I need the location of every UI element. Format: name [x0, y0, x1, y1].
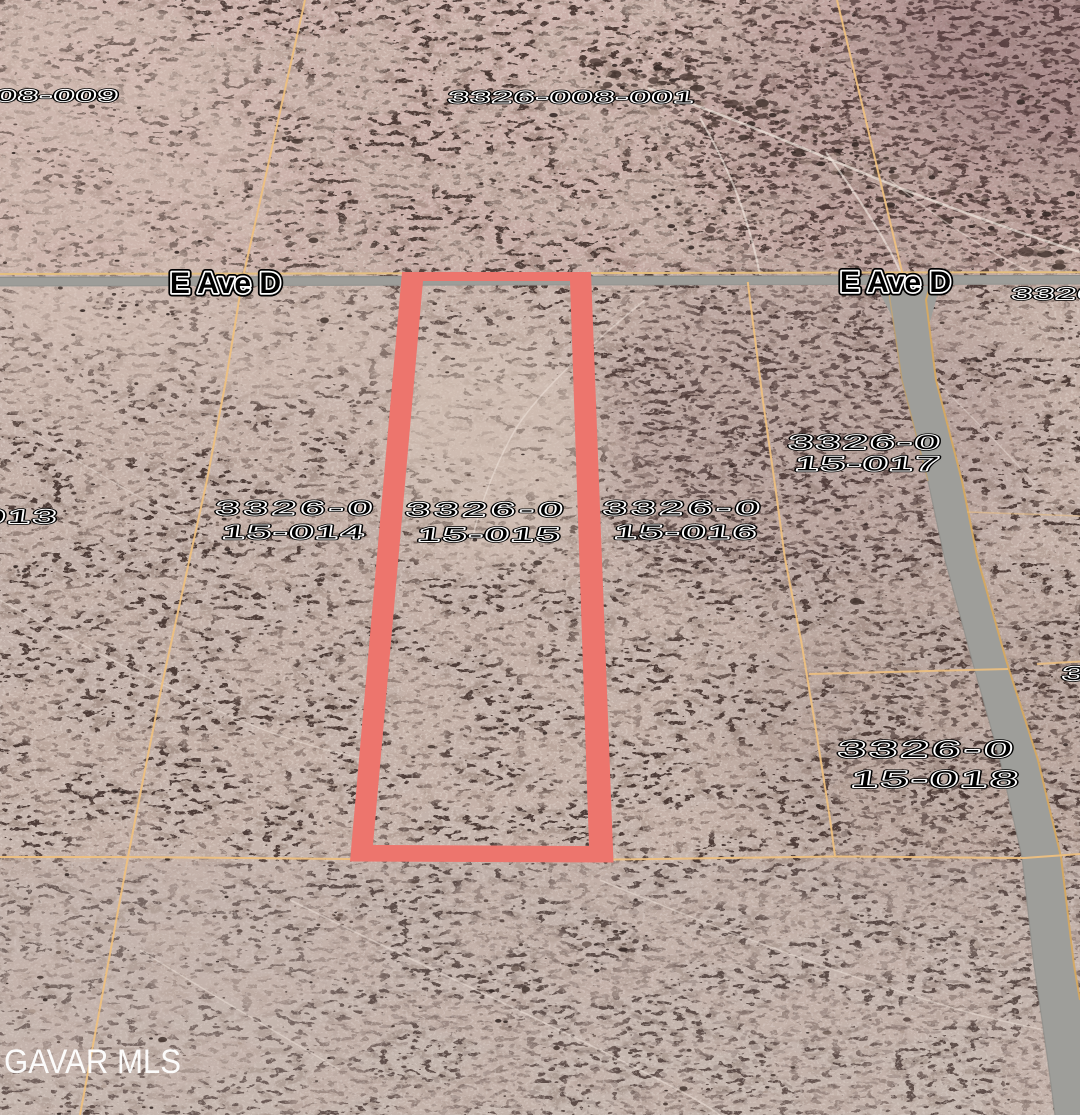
svg-text:3326-0: 3326-0: [215, 498, 379, 519]
svg-text:GAVAR MLS: GAVAR MLS: [4, 1043, 181, 1081]
svg-text:15-014: 15-014: [221, 522, 368, 543]
svg-text:15-013: 15-013: [0, 506, 61, 527]
svg-text:3326-0: 3326-0: [1061, 663, 1080, 684]
svg-text:3326-0: 3326-0: [603, 498, 767, 519]
svg-text:E Ave D: E Ave D: [840, 266, 951, 299]
svg-text:15-015: 15-015: [417, 524, 564, 545]
svg-text:3326-00: 3326-00: [1011, 284, 1080, 302]
svg-text:3326-0: 3326-0: [406, 499, 570, 520]
svg-text:15-016: 15-016: [613, 522, 760, 543]
svg-text:3326-0: 3326-0: [788, 431, 945, 453]
svg-text:15-018: 15-018: [850, 767, 1023, 792]
svg-text:3326-008-001: 3326-008-001: [448, 88, 698, 106]
svg-text:3326-008-009: 3326-008-009: [0, 86, 122, 104]
svg-text:3326-0: 3326-0: [837, 737, 1019, 762]
svg-text:E Ave D: E Ave D: [170, 267, 281, 300]
svg-text:15-017: 15-017: [794, 452, 943, 474]
